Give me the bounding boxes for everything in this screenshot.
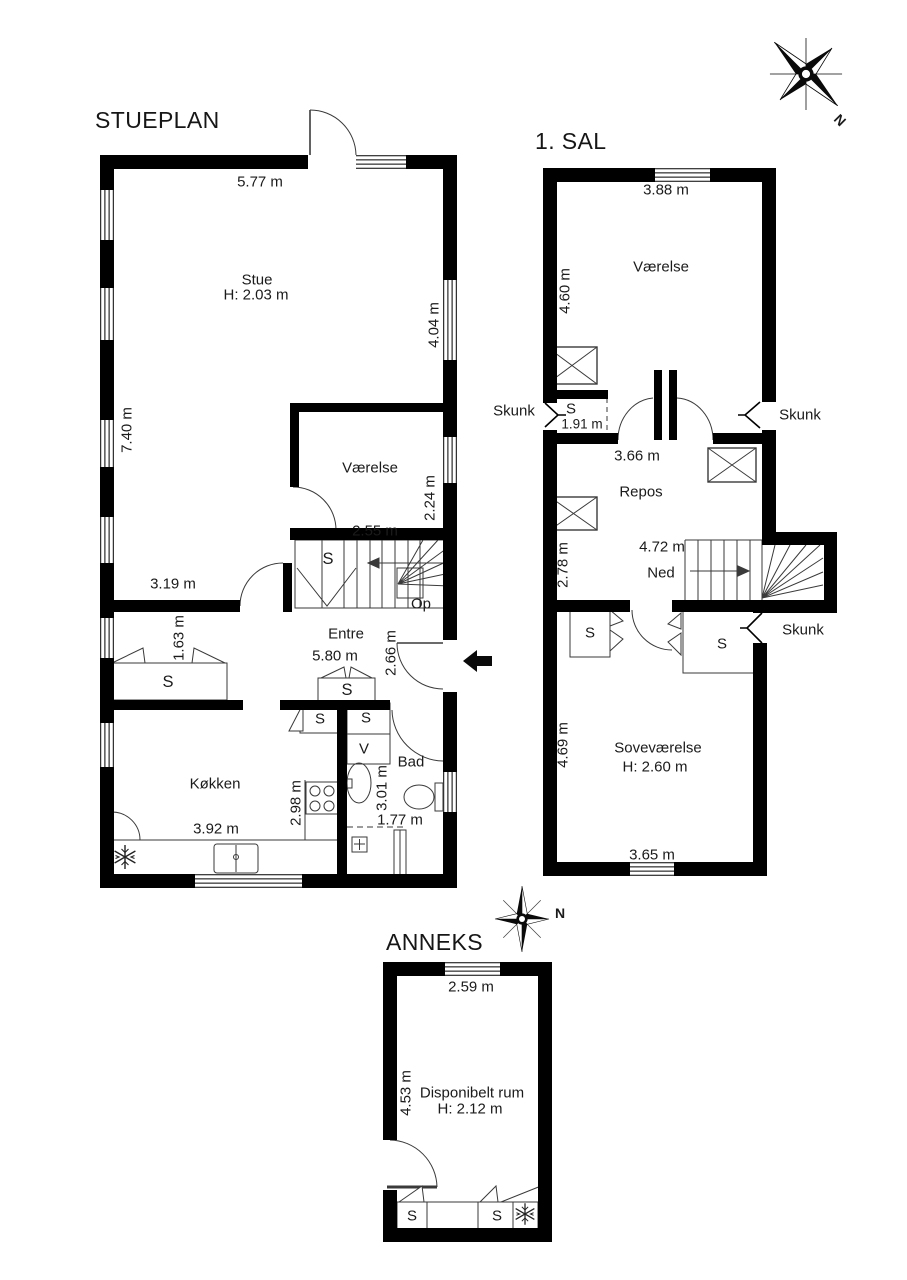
closet-left-label: S [162,674,173,691]
room-sovevaerelse-height: H: 2.60 m [622,760,687,775]
dim-anneks-left: 4.53 m [399,1070,414,1116]
dim-anneks-top: 2.59 m [448,980,494,995]
skunk-left-label: Skunk [493,404,535,419]
anneks-title: ANNEKS [386,931,483,954]
closet-bedroom-right-label: S [717,637,727,652]
room-sovevaerelse: Soveværelse [614,741,702,756]
room-disponibelt: Disponibelt rum [420,1086,524,1101]
skunk-right-label: Skunk [779,408,821,423]
dim-closet-1sal: 1.91 m [561,417,602,431]
room-vaerelse-st: Værelse [342,461,398,476]
room-entre: Entre [328,627,364,642]
dim-bedroom-depth: 4.69 m [556,722,571,768]
closet-bath-label: S [361,711,371,726]
entrance-arrow-icon [463,650,492,672]
room-disponibelt-height: H: 2.12 m [437,1102,502,1117]
closet-1sal-label: S [566,402,576,417]
room-vaerelse-1sal: Værelse [633,260,689,275]
dim-hall-wall: 3.19 m [150,577,196,592]
dim-stue-top: 5.77 m [237,175,283,190]
freezer-icon [115,845,136,869]
anneks-freezer-icon [516,1203,535,1225]
dim-koekken-width: 3.92 m [193,822,239,837]
stueplan-walls [100,155,457,888]
closet-anneks1-label: S [407,1209,417,1224]
dim-vaerelse1-depth: 4.60 m [558,268,573,314]
dim-repos-depth: 2.78 m [556,542,571,588]
closet-stair-label: S [322,551,333,568]
room-koekken: Køkken [190,777,241,792]
floor-plan-page: STUEPLAN 1. SAL ANNEKS 5.77 m Stue H: 2.… [0,0,907,1280]
closet-bedroom-left-label: S [585,626,595,641]
sal1-title: 1. SAL [535,130,606,153]
sal1-walls [543,168,837,876]
skunk-lower-label: Skunk [782,623,824,638]
stueplan-title: STUEPLAN [95,109,220,132]
dim-stair-length: 4.72 m [639,540,685,555]
dim-repos-width: 3.66 m [614,449,660,464]
dim-closet-left: 1.63 m [172,615,187,661]
dim-stue-right: 4.04 m [427,302,442,348]
dim-bad-width: 1.77 m [377,813,423,828]
dim-vaerelse1-width: 3.88 m [643,183,689,198]
room-stue-height: H: 2.03 m [223,288,288,303]
dim-koekken-depth: 2.98 m [289,780,304,826]
dim-entre-width: 5.80 m [312,649,358,664]
compass-north-label-anneks: N [555,906,565,920]
dim-bedroom-width: 3.65 m [629,848,675,863]
room-bad: Bad [398,755,425,770]
dim-vaerelse-width-st: 2.55 m [352,524,398,539]
dim-entre-depth: 2.66 m [384,630,399,676]
room-repos: Repos [619,485,662,500]
room-stue: Stue [242,273,273,288]
stair-up-label: Op [411,597,431,612]
closet-kitchen-label: S [315,712,325,727]
compass-north-anneks [495,886,549,952]
washer-label: V [359,742,369,757]
dim-vaerelse-depth-st: 2.24 m [423,475,438,521]
stair-down-label: Ned [647,566,675,581]
closet-anneks2-label: S [492,1209,502,1224]
dim-stue-left: 7.40 m [120,407,135,453]
dim-bad-depth: 3.01 m [375,765,390,811]
closet-entre-label: S [341,682,352,699]
